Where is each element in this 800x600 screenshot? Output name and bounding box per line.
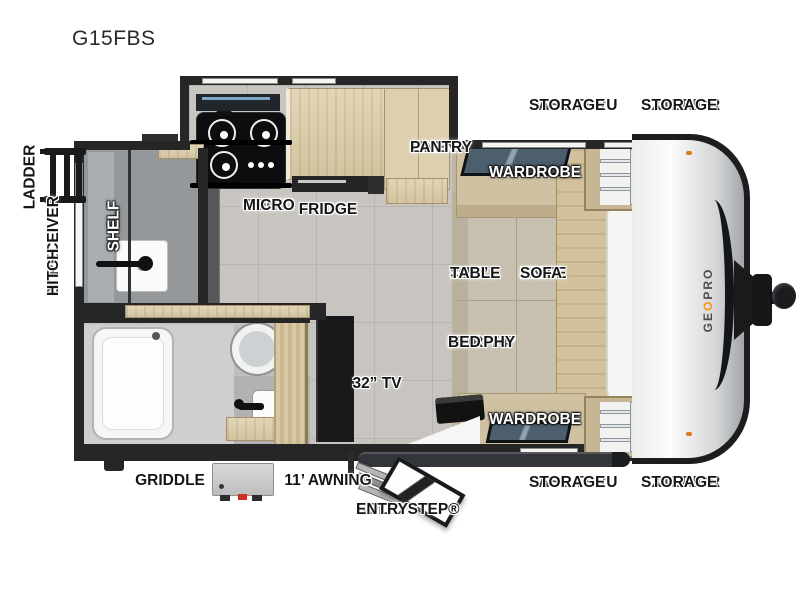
divider-counter-strip: [125, 305, 310, 318]
model-title: G15FBS: [72, 27, 156, 51]
label-line: BED: [448, 333, 481, 352]
label-line: TABLE: [450, 264, 501, 283]
bumper-tab: [104, 458, 124, 471]
label-shelf: SHELF: [105, 201, 124, 252]
label-tv: 32” TV: [352, 374, 401, 393]
knob-dot: [268, 162, 274, 168]
brand-logo: GEOPRO: [703, 295, 713, 305]
logo-text-pro: PRO: [701, 268, 715, 300]
range-hood-window: [196, 94, 280, 111]
label-line: HITCH: [44, 249, 63, 296]
shower-glass-door: [128, 150, 131, 304]
fridge-handle: [298, 180, 346, 183]
cooktop-grate-bar: [190, 140, 292, 145]
wall-top-rear: [74, 141, 190, 150]
griddle-knob: [219, 484, 224, 489]
fridge-front: [292, 176, 368, 192]
label-line: STORAGE: [641, 96, 717, 115]
label-griddle: GRIDDLE: [135, 471, 205, 490]
marker-light: [686, 432, 692, 436]
pantry-base: [386, 178, 448, 204]
window-strip: [292, 78, 336, 84]
kitchen-counter: [286, 88, 386, 180]
label-wardrobe-top: WARDROBE: [489, 163, 581, 182]
ladder-rung: [64, 148, 70, 203]
faucet-knob: [234, 399, 244, 409]
logo-text-ge: GE: [701, 311, 715, 332]
coupler-knob: [772, 283, 796, 309]
griddle-unit: [212, 463, 274, 496]
knob-dot: [248, 162, 254, 168]
label-line: STORAGE: [641, 473, 717, 492]
wall-shower: [198, 148, 208, 308]
hood-glass-line: [202, 97, 270, 100]
burner-center: [262, 131, 270, 139]
tub-faucet: [152, 332, 160, 340]
label-line: STORAGE: [529, 473, 605, 492]
logo-text-o: O: [701, 300, 715, 311]
label-wardrobe-bottom: WARDROBE: [489, 410, 581, 429]
label-awning: 11’ AWNING: [284, 471, 371, 490]
floorplan-diagram: G15FBS: [0, 0, 800, 600]
burner-icon: [210, 151, 238, 179]
ladder-rung: [76, 148, 82, 203]
hood-vent: [216, 111, 232, 116]
label-line: PANTRY: [410, 138, 472, 157]
wall-kitchen-left: [180, 76, 189, 150]
bathtub-inner: [102, 337, 164, 430]
pocket-door: [274, 318, 308, 444]
tv-cabinet: [316, 316, 354, 442]
label-line: MICRO: [243, 196, 295, 215]
label-ladder: LADDER: [21, 145, 40, 210]
griddle-foot: [252, 495, 262, 501]
burner-center: [222, 163, 230, 171]
label-line: STORAGE: [529, 96, 605, 115]
cushion-seam: [516, 194, 517, 412]
burner-center: [220, 131, 228, 139]
label-line: ENTRY: [356, 500, 408, 519]
ladder-rung: [50, 148, 56, 203]
shower-head-icon: [138, 256, 153, 271]
tongue-jack: [752, 274, 772, 326]
label-fridge: FRIDGE: [299, 200, 358, 219]
label-line: SOFA: [520, 264, 562, 283]
cushion-seam: [456, 300, 562, 301]
griddle-foot: [220, 495, 230, 501]
knob-dot: [258, 162, 264, 168]
marker-light: [686, 151, 692, 155]
window-strip: [202, 78, 278, 84]
awning-end-cap: [612, 452, 630, 467]
griddle-valve: [238, 494, 247, 500]
ladder-foot: [40, 149, 45, 154]
window-strip: [482, 142, 586, 148]
cabinet-slot: [368, 176, 384, 194]
